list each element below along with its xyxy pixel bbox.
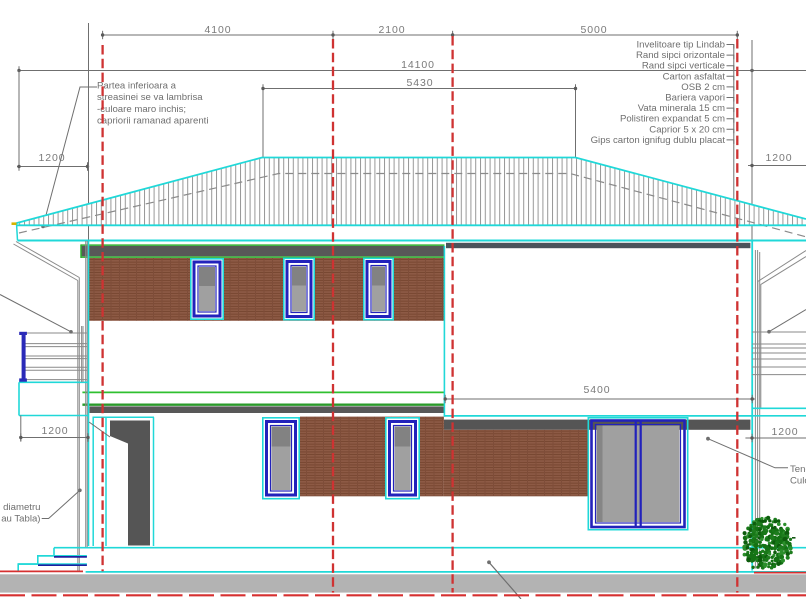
svg-text:1200: 1200 [772,426,799,438]
svg-text:Gips carton ignifug dublu plac: Gips carton ignifug dublu placat [591,135,726,146]
svg-text:OSB 2 cm: OSB 2 cm [681,82,725,93]
svg-text:Tencuiala: Tencuiala [790,464,806,475]
svg-text:Culoare: Culoare [790,476,806,487]
svg-text:Partea inferioara a: Partea inferioara a [97,81,177,92]
svg-text:Invelitoare tip Lindab: Invelitoare tip Lindab [636,40,725,51]
svg-text:au Tabla): au Tabla) [1,514,40,525]
svg-text:Polistiren expandat 5 cm: Polistiren expandat 5 cm [620,114,725,125]
svg-text:diametru: diametru [3,502,40,513]
svg-text:2100: 2100 [379,24,406,36]
svg-text:Carton asfaltat: Carton asfaltat [663,71,726,82]
svg-text:Bariera vapori: Bariera vapori [665,93,725,104]
svg-text:Rand sipci orizontale: Rand sipci orizontale [636,50,725,61]
svg-text:streasinei se va lambrisa: streasinei se va lambrisa [97,92,203,103]
svg-text:5000: 5000 [581,24,608,36]
svg-text:capriorii ramanad aparenti: capriorii ramanad aparenti [97,116,208,127]
svg-text:Rand sipci verticale: Rand sipci verticale [642,61,725,72]
svg-text:1200: 1200 [42,425,69,437]
svg-text:4100: 4100 [205,24,232,36]
svg-text:Caprior 5 x 20 cm: Caprior 5 x 20 cm [649,124,725,135]
svg-text:5400: 5400 [584,384,611,396]
svg-text:5430: 5430 [407,77,434,89]
svg-text:1200: 1200 [766,152,793,164]
svg-text:-culoare maro inchis;: -culoare maro inchis; [97,104,186,115]
svg-text:14100: 14100 [401,59,435,71]
svg-text:Vata minerala 15 cm: Vata minerala 15 cm [638,103,725,114]
